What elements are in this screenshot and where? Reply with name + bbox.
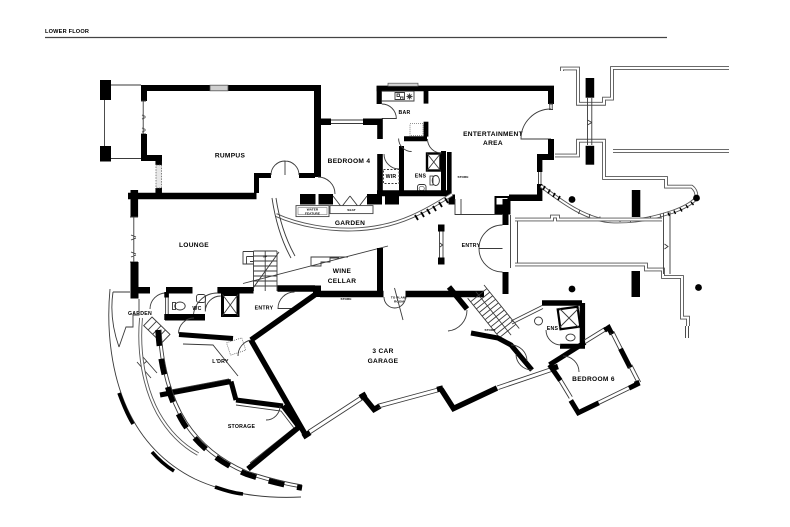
svg-text:LOWER FLOOR: LOWER FLOOR	[45, 29, 89, 35]
svg-text:AREA: AREA	[483, 140, 503, 147]
svg-text:STORE: STORE	[484, 328, 495, 332]
svg-text:CELLAR: CELLAR	[328, 278, 357, 285]
svg-text:ENS: ENS	[547, 326, 559, 332]
svg-text:LOUNGE: LOUNGE	[179, 242, 209, 249]
svg-text:BEDROOM 4: BEDROOM 4	[328, 158, 371, 165]
svg-text:GARDEN: GARDEN	[335, 220, 365, 227]
svg-text:ENTRY: ENTRY	[462, 243, 481, 249]
svg-text:3 CAR: 3 CAR	[372, 348, 393, 355]
svg-text:RUMPUS: RUMPUS	[215, 153, 246, 160]
svg-text:UP: UP	[263, 255, 268, 259]
svg-text:STORE: STORE	[457, 175, 468, 179]
svg-text:BAR: BAR	[399, 110, 411, 116]
svg-text:SEAT: SEAT	[347, 208, 355, 212]
svg-text:WINE: WINE	[333, 268, 352, 275]
svg-text:FEATURE: FEATURE	[305, 212, 320, 216]
svg-text:GARDEN: GARDEN	[128, 311, 152, 317]
svg-text:WC: WC	[192, 306, 201, 312]
svg-text:ENS: ENS	[415, 174, 427, 180]
svg-text:WIR: WIR	[386, 174, 397, 180]
svg-text:ENTERTAINMENT: ENTERTAINMENT	[463, 131, 523, 138]
svg-text:ROOM: ROOM	[394, 299, 404, 303]
svg-text:STORAGE: STORAGE	[228, 424, 256, 430]
svg-text:BEDROOM 6: BEDROOM 6	[572, 376, 615, 383]
svg-text:ENTRY: ENTRY	[255, 306, 274, 312]
svg-text:STORE: STORE	[340, 297, 351, 301]
svg-text:GARAGE: GARAGE	[368, 358, 399, 365]
